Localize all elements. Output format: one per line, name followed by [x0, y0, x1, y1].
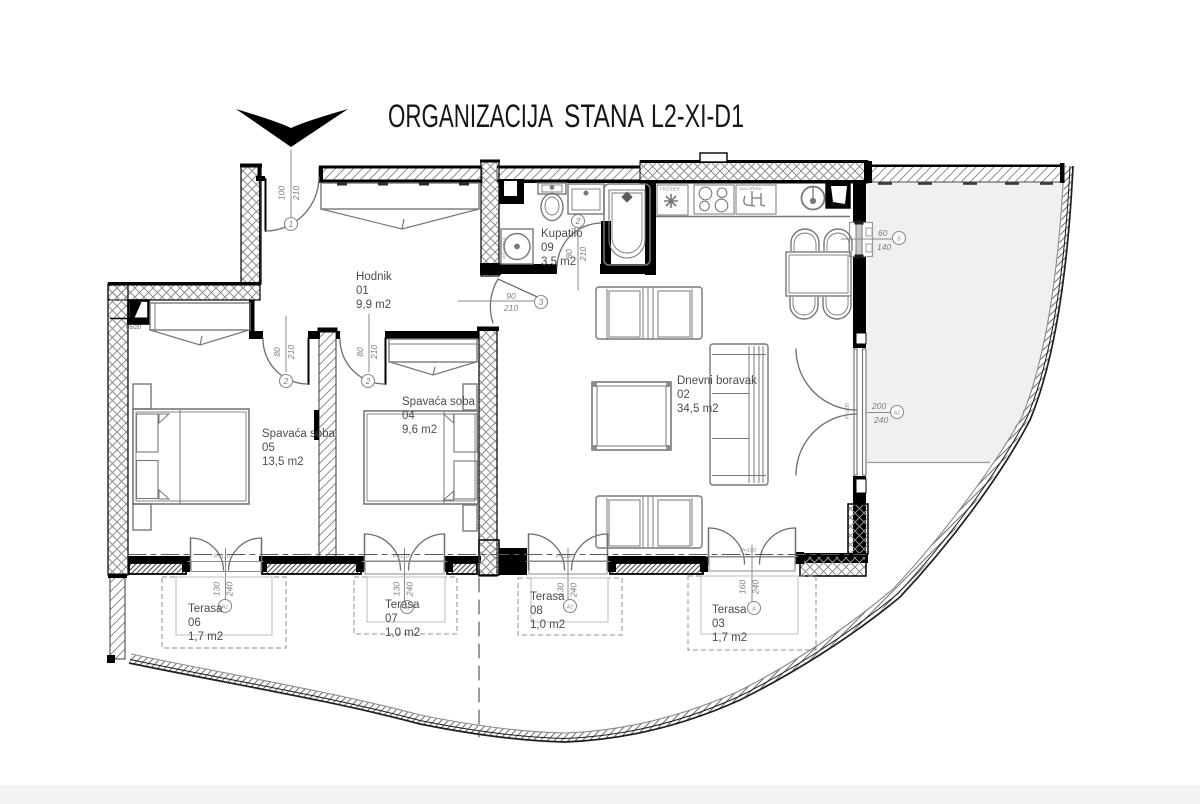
svg-text:240: 240: [225, 582, 235, 597]
svg-text:140: 140: [877, 242, 891, 252]
svg-text:VEŠ MAŠINA: VEŠ MAŠINA: [502, 236, 507, 259]
svg-text:100: 100: [277, 186, 287, 200]
svg-text:Kupatilo: Kupatilo: [541, 228, 583, 240]
svg-text:B: B: [897, 237, 901, 243]
svg-text:3: 3: [539, 297, 544, 307]
svg-text:P=160: P=160: [740, 548, 757, 554]
svg-text:05: 05: [262, 442, 275, 454]
svg-text:Terasa: Terasa: [530, 591, 565, 603]
svg-text:Spavaća soba: Spavaća soba: [262, 428, 335, 440]
svg-text:60: 60: [878, 228, 888, 238]
svg-text:Hodnik: Hodnik: [356, 271, 392, 283]
svg-text:1,0 m2: 1,0 m2: [385, 627, 420, 639]
svg-text:80: 80: [272, 347, 282, 357]
svg-text:Terasa: Terasa: [188, 603, 223, 615]
svg-text:08: 08: [530, 605, 543, 617]
svg-text:Terasa: Terasa: [712, 604, 747, 616]
svg-text:1: 1: [289, 219, 294, 229]
svg-text:130: 130: [212, 582, 222, 596]
svg-text:P=200: P=200: [845, 402, 851, 419]
svg-text:Terasa: Terasa: [385, 599, 420, 611]
svg-text:9,6 m2: 9,6 m2: [402, 424, 437, 436]
svg-text:07: 07: [385, 613, 398, 625]
svg-text:2: 2: [365, 376, 371, 386]
svg-text:Spavaća soba: Spavaća soba: [402, 396, 475, 408]
svg-text:210: 210: [578, 247, 588, 262]
svg-text:FRIŽIDER: FRIŽIDER: [660, 187, 680, 192]
svg-text:3,5 m2: 3,5 m2: [541, 256, 576, 268]
svg-text:2: 2: [575, 216, 581, 226]
svg-text:A1: A1: [566, 605, 574, 611]
svg-text:01: 01: [356, 285, 369, 297]
svg-text:BOJLER: BOJLER: [831, 202, 847, 207]
svg-text:34,5 m2: 34,5 m2: [677, 403, 719, 415]
svg-text:L2-XI-D1: L2-XI-D1: [651, 98, 744, 134]
svg-text:04: 04: [402, 410, 415, 422]
svg-text:03: 03: [712, 618, 725, 630]
svg-text:210: 210: [503, 303, 518, 313]
svg-text:1,0 m2: 1,0 m2: [530, 619, 565, 631]
svg-text:200: 200: [871, 401, 886, 411]
svg-text:65/20: 65/20: [126, 325, 142, 331]
svg-text:240: 240: [751, 580, 761, 595]
svg-text:240: 240: [873, 415, 888, 425]
svg-text:1,7 m2: 1,7 m2: [188, 631, 223, 643]
svg-text:A: A: [751, 607, 756, 613]
svg-text:80: 80: [355, 347, 365, 357]
svg-text:2: 2: [283, 376, 289, 386]
svg-text:09: 09: [541, 242, 554, 254]
svg-text:1,7 m2: 1,7 m2: [712, 632, 747, 644]
svg-text:210: 210: [291, 186, 301, 201]
svg-text:ORGANIZACIJA: ORGANIZACIJA: [388, 98, 553, 134]
svg-text:06: 06: [188, 617, 201, 629]
svg-text:SUDOPERA: SUDOPERA: [739, 186, 762, 191]
svg-text:210: 210: [286, 345, 296, 360]
svg-text:90: 90: [506, 291, 516, 301]
svg-text:13,5 m2: 13,5 m2: [262, 456, 304, 468]
svg-text:240: 240: [405, 582, 415, 597]
svg-text:160: 160: [738, 580, 748, 594]
svg-text:130: 130: [392, 582, 402, 596]
svg-text:A2: A2: [893, 411, 901, 417]
svg-text:240: 240: [569, 583, 579, 598]
svg-text:Dnevni boravak: Dnevni boravak: [677, 375, 757, 387]
svg-text:9,9 m2: 9,9 m2: [356, 299, 391, 311]
svg-text:210: 210: [369, 345, 379, 360]
svg-text:02: 02: [677, 389, 690, 401]
svg-text:STANA: STANA: [564, 98, 645, 134]
